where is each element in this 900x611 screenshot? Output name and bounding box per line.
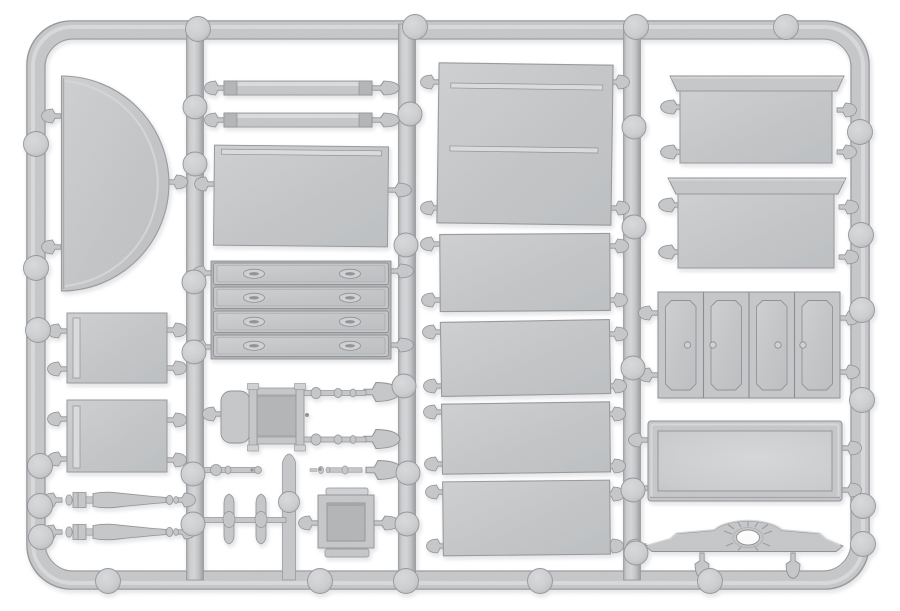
sprue-photo: Light grey injection-moulded plastic spr… bbox=[0, 0, 900, 611]
part-tray bbox=[648, 421, 842, 501]
part-drawer-box bbox=[318, 488, 374, 557]
part-folding-doors bbox=[658, 292, 840, 398]
sprue-illustration: Light grey injection-moulded plastic spr… bbox=[0, 0, 900, 611]
part-table-top-panel bbox=[213, 145, 388, 247]
part-drawer-fronts bbox=[211, 261, 391, 359]
part-flat-panels bbox=[437, 63, 613, 556]
pediment-cutout bbox=[737, 530, 760, 545]
runner-stub bbox=[283, 454, 296, 580]
